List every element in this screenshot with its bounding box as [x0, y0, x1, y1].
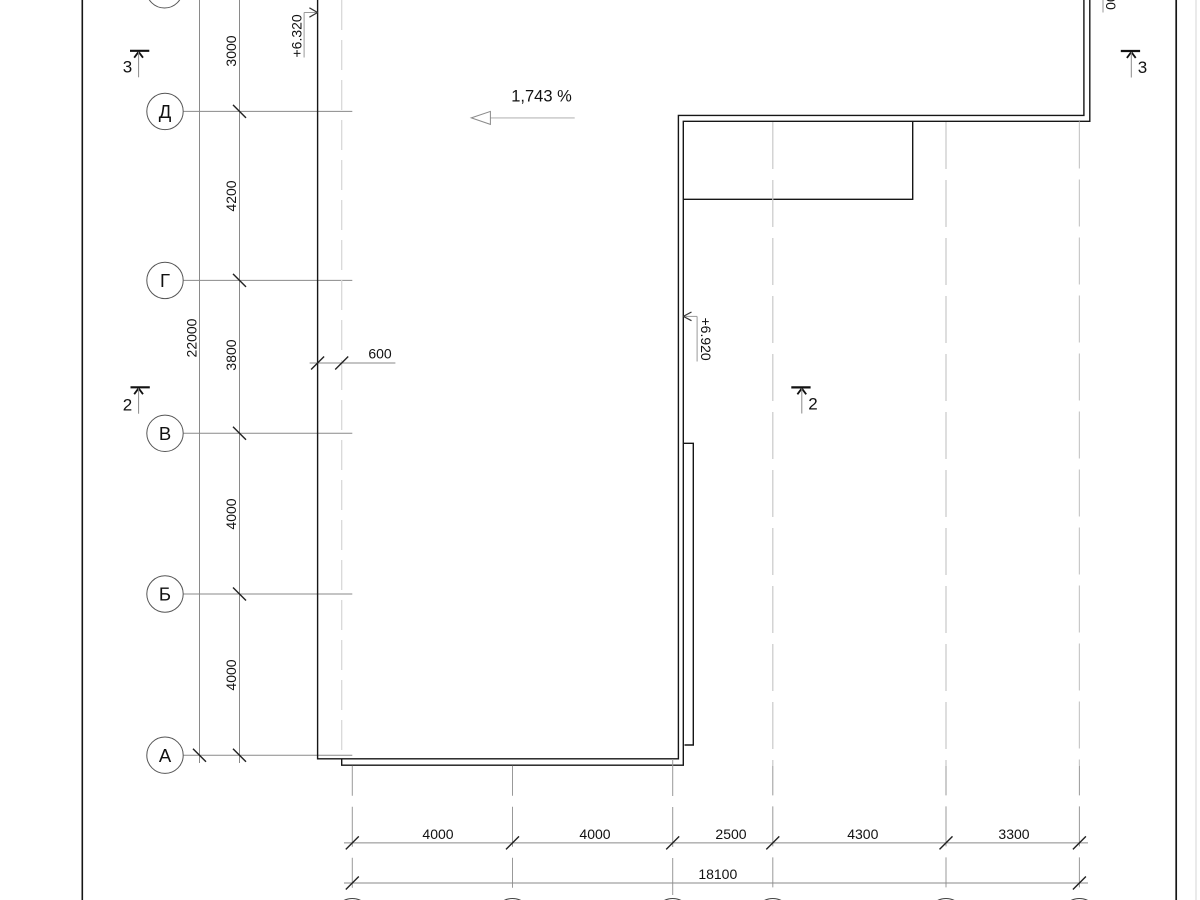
svg-text:3000: 3000	[223, 35, 239, 66]
svg-text:4000: 4000	[579, 826, 610, 842]
svg-text:4200: 4200	[223, 180, 239, 211]
svg-text:Д: Д	[159, 101, 172, 122]
svg-text:В: В	[159, 423, 171, 444]
svg-text:+6.920: +6.920	[698, 318, 714, 361]
svg-text:1,743 %: 1,743 %	[511, 88, 572, 106]
svg-text:4000: 4000	[422, 826, 453, 842]
svg-text:Г: Г	[160, 270, 170, 291]
svg-text:22000: 22000	[184, 318, 200, 357]
svg-text:600: 600	[1103, 0, 1119, 10]
svg-text:Б: Б	[159, 584, 171, 605]
svg-text:3800: 3800	[223, 339, 239, 370]
svg-text:4000: 4000	[223, 498, 239, 529]
svg-text:4300: 4300	[847, 826, 878, 842]
svg-text:2: 2	[808, 395, 817, 414]
svg-text:3300: 3300	[998, 826, 1029, 842]
svg-text:4000: 4000	[223, 659, 239, 690]
svg-text:А: А	[159, 745, 172, 766]
svg-text:2: 2	[123, 395, 132, 414]
svg-text:3: 3	[1138, 58, 1147, 77]
svg-text:+6.320: +6.320	[289, 14, 305, 57]
svg-text:3: 3	[123, 58, 132, 77]
svg-text:2500: 2500	[715, 826, 746, 842]
svg-text:600: 600	[368, 345, 392, 361]
svg-text:18100: 18100	[698, 866, 737, 882]
